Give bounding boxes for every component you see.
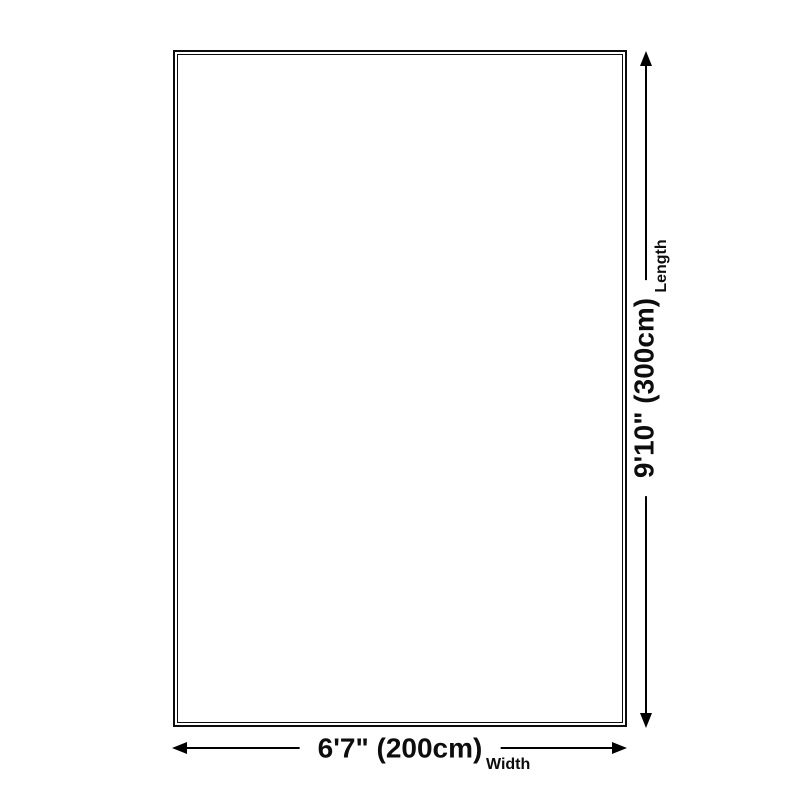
- rug-size-diagram: 9'10" (300cm) Length 6'7" (200cm) Width: [0, 0, 800, 800]
- arrowhead-down-icon: [640, 713, 652, 728]
- rug-outline-inner-border: [177, 54, 623, 723]
- width-value-label: 6'7" (200cm): [300, 734, 501, 765]
- width-unit-label: Width: [486, 757, 530, 773]
- length-value-label: 9'10" (300cm): [630, 280, 661, 496]
- rug-outline: [173, 50, 627, 727]
- length-unit-label: Length: [654, 239, 670, 292]
- arrowhead-right-icon: [612, 742, 627, 754]
